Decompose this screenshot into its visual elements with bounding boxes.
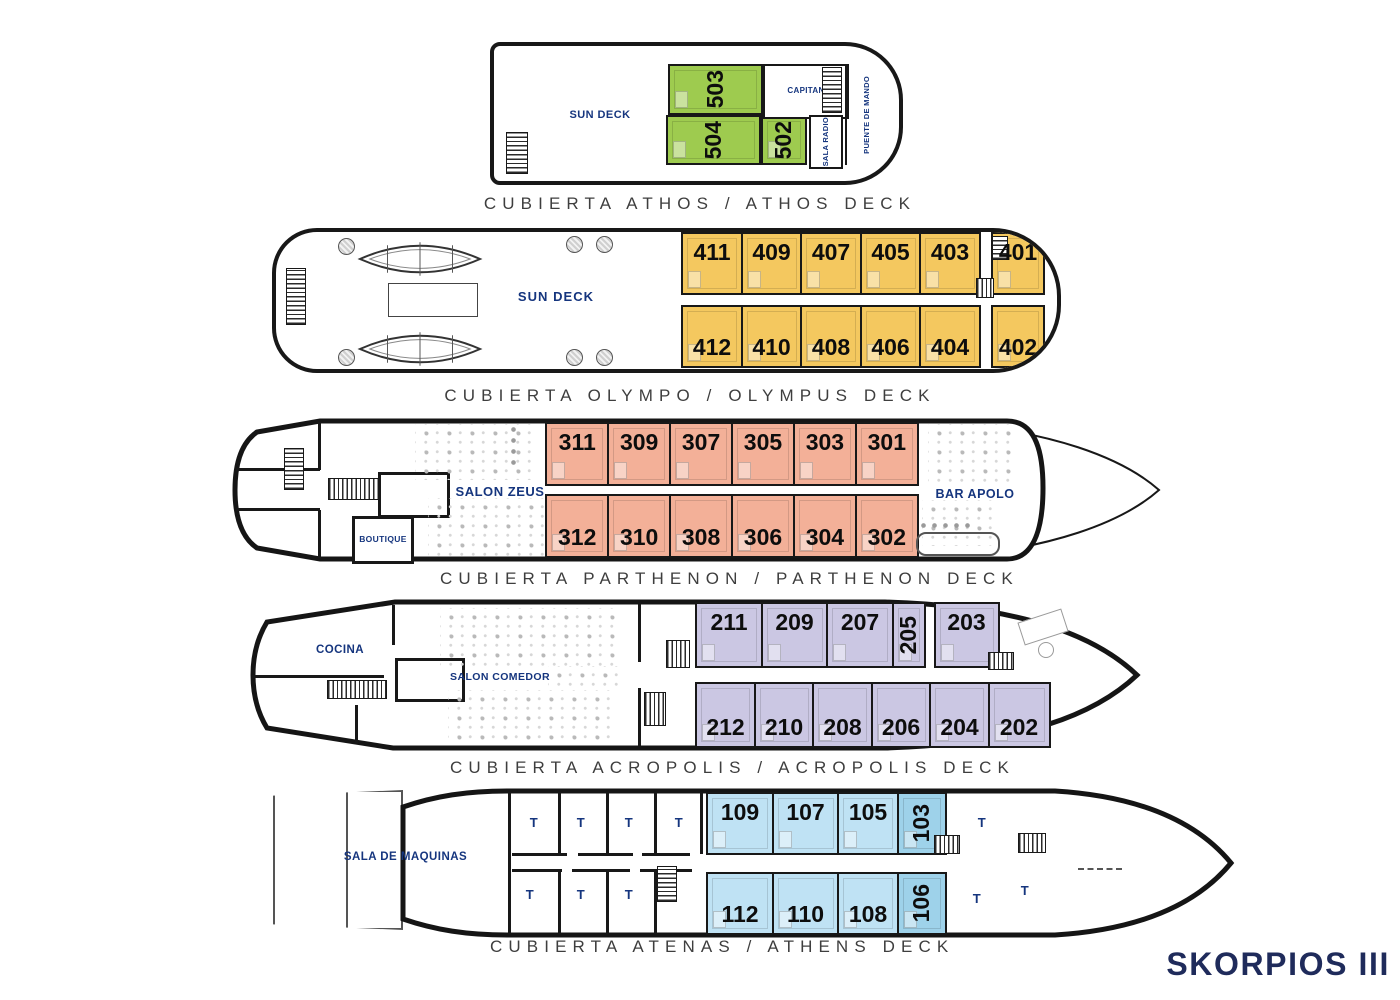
deck-table-icon [596,349,613,366]
cabin-number: 210 [765,716,803,739]
crew-cabin-label: T [571,888,591,902]
atenas-cabin-row-bottom: 112110108106 [706,872,954,935]
acropolis-cabin-row-top: 211209207205203 [695,602,1007,668]
atenas-deck-title: CUBIERTA ATENAS / ATHENS DECK [490,937,910,957]
stairs-icon [284,448,304,490]
tables-area [448,690,616,742]
crew-cabin-label: T [571,816,591,830]
interior-wall [508,792,511,934]
cabin-number: 409 [752,241,790,264]
salon-comedor-label: SALON COMEDOR [450,672,550,684]
cabin-number: 112 [721,903,758,926]
cabin-208: 208 [812,682,873,748]
cabin-312: 312 [545,494,609,558]
stairs-icon [934,835,960,854]
cabin-number: 405 [871,241,909,264]
cabin-412: 412 [681,305,743,368]
cabin-number: 302 [868,526,906,549]
cabin-106: 106 [897,872,947,935]
porthole-dots [918,520,974,530]
cabin-number: 502 [772,121,795,159]
olympo-hull: SUN DECK 411409407405403401 412410408406… [272,228,1061,373]
cabin-number: 206 [882,716,920,739]
stairs-icon [666,640,690,668]
cabin-307: 307 [669,422,733,486]
ship-name: SKORPIOS III [1050,946,1390,983]
deck-structure [388,283,478,317]
bar-apolo-label: BAR APOLO [925,488,1025,502]
cabin-411: 411 [681,232,743,295]
cabin-404: 404 [919,305,981,368]
cabin-210: 210 [754,682,815,748]
cabin-number: 209 [775,611,813,634]
sala-de-maquinas-label: SALA DE MAQUINAS [318,851,493,864]
cabin-number: 105 [849,801,887,824]
stairs-icon [286,268,306,325]
acropolis-cabin-row-bottom: 212210208206204202 [695,682,1063,748]
cabin-number: 401 [999,241,1037,264]
cabin-205: 205 [892,602,926,668]
sala-radio-label: SALA RADIO [822,117,830,166]
parthenon-deck-title: CUBIERTA PARTHENON / PARTHENON DECK [440,569,960,589]
cabin-402: 402 [991,305,1045,368]
cabin-503: 503 [668,64,763,115]
cabin-401: 401 [991,232,1045,295]
cabin-305: 305 [731,422,795,486]
crew-cabin-label: T [619,888,639,902]
cabin-number: 303 [806,431,844,454]
cabin-number: 108 [849,903,887,926]
cabin-number: 208 [823,716,861,739]
cabin-310: 310 [607,494,671,558]
cabin-number: 106 [910,884,933,922]
cabin-number: 412 [693,336,731,359]
deck-table-icon [338,238,355,255]
cabin-403: 403 [919,232,981,295]
cabin-407: 407 [800,232,862,295]
cabin-206: 206 [871,682,932,748]
cabin-311: 311 [545,422,609,486]
cabin-number: 207 [841,611,879,634]
bar-counter [916,532,1000,556]
parthenon-cabin-row-top: 311309307305303301 [545,422,919,486]
stairs-icon [657,866,677,902]
athos-deck-title: CUBIERTA ATHOS / ATHOS DECK [450,194,950,214]
cabin-303: 303 [793,422,857,486]
tables-area [428,498,548,556]
cabin-number: 312 [558,526,596,549]
tables-area [548,666,618,686]
olympo-cabin-row-bottom: 412410408406404402 [681,305,1056,368]
cabin-306: 306 [731,494,795,558]
cabin-406: 406 [860,305,922,368]
cabin-number: 110 [787,903,824,926]
olympo-sun-deck-label: SUN DECK [476,290,636,304]
cabin-number: 310 [620,526,658,549]
cabin-number: 504 [702,121,725,159]
interior-wall [318,422,321,470]
cabin-number: 211 [710,611,747,634]
cabin-number: 103 [910,804,933,842]
interior-wall [236,508,320,511]
cabin-number: 305 [744,431,782,454]
stairs-icon [644,692,666,726]
cabin-504: 504 [666,115,761,165]
corridor-wall [512,853,567,856]
dashed-wall [1078,868,1122,870]
parthenon-cabin-row-bottom: 312310308306304302 [545,494,919,558]
interior-wall [558,872,561,934]
crew-cabin-label: T [520,888,540,902]
cabin-209: 209 [761,602,829,668]
cabin-number: 503 [704,70,727,108]
cabin-number: 404 [931,336,969,359]
cabin-112: 112 [706,872,774,935]
cabin-number: 407 [812,241,850,264]
deck-table-icon [566,349,583,366]
interior-wall [355,705,358,743]
puente-de-mando-label: PUENTE DE MANDO [863,76,871,154]
olympo-deck-title: CUBIERTA OLYMPO / OLYMPUS DECK [430,386,950,406]
cabin-number: 205 [897,616,920,654]
stairs-icon [976,278,994,298]
cabin-number: 301 [868,431,906,454]
cabin-211: 211 [695,602,763,668]
cabin-309: 309 [607,422,671,486]
cabin-number: 308 [682,526,720,549]
cabin-number: 406 [871,336,909,359]
deck-plan-canvas: SUN DECK 503 504 502 CAPITAN SALA RADIO … [0,0,1400,1000]
cabin-number: 304 [806,526,844,549]
deck-table-icon [566,236,583,253]
stairs-icon [506,132,528,174]
acropolis-deck-title: CUBIERTA ACROPOLIS / ACROPOLIS DECK [450,758,950,778]
porthole-dots [508,424,520,470]
cabin-number: 212 [706,716,744,739]
corridor-wall [578,853,633,856]
cabin-number: 408 [812,336,850,359]
deck-table-icon [596,236,613,253]
interior-wall [252,675,384,678]
deck-table-icon [338,349,355,366]
cabin-number: 403 [931,241,969,264]
stairs-icon [988,652,1014,670]
interior-wall [606,872,609,934]
crew-cabin-label: T [1015,884,1035,898]
sala-radio-room: SALA RADIO [809,115,843,169]
cabin-number: 411 [693,241,730,264]
stairs-icon [822,67,842,113]
cabin-number: 410 [752,336,790,359]
cabin-110: 110 [772,872,840,935]
stairs-icon [327,680,387,699]
cabin-301: 301 [855,422,919,486]
tables-area [440,608,615,666]
crew-cabin-label: T [669,816,689,830]
interior-wall [318,510,321,558]
interior-wall [606,792,609,854]
cabin-105: 105 [837,792,899,855]
cabin-number: 107 [786,801,824,824]
suite-table [1038,642,1054,658]
interior-wall [558,792,561,854]
interior-wall [700,792,703,854]
cabin-number: 402 [999,336,1037,359]
lifeboat-icon [356,328,484,370]
crew-cabin-label: T [972,816,992,830]
cabin-410: 410 [741,305,803,368]
atenas-cabin-row-top: 109107105103 [706,792,954,855]
corridor-wall [512,869,562,872]
cabin-number: 202 [1000,716,1038,739]
crew-cabin-label: T [619,816,639,830]
cabin-204: 204 [929,682,990,748]
puente-de-mando-room: PUENTE DE MANDO [845,64,887,165]
stairs-icon [1018,833,1046,853]
athos-sun-deck-label: SUN DECK [520,109,680,121]
interior-wall [638,604,641,662]
cabin-number: 204 [940,716,978,739]
cabin-308: 308 [669,494,733,558]
cabin-207: 207 [826,602,894,668]
cabin-108: 108 [837,872,899,935]
cabin-405: 405 [860,232,922,295]
crew-cabin-label: T [524,816,544,830]
cabin-304: 304 [793,494,857,558]
cabin-409: 409 [741,232,803,295]
cabin-number: 109 [721,801,759,824]
cabin-number: 306 [744,526,782,549]
cabin-number: 203 [947,611,985,634]
cabin-212: 212 [695,682,756,748]
interior-wall [392,605,395,645]
capitan-label: CAPITAN [787,87,824,96]
cabin-502: 502 [761,115,807,165]
boutique-room: BOUTIQUE [352,516,414,564]
tables-area [928,424,1012,482]
interior-wall [654,792,657,854]
interior-wall [638,688,641,746]
cabin-408: 408 [800,305,862,368]
lifeboat-icon [356,238,484,280]
cabin-number: 309 [620,431,658,454]
cabin-202: 202 [988,682,1051,748]
crew-cabin-label: T [967,892,987,906]
cabin-number: 311 [559,431,596,454]
interior-wall [236,468,320,471]
cabin-number: 307 [682,431,720,454]
olympo-cabin-row-top: 411409407405403401 [681,232,1056,295]
cabin-109: 109 [706,792,774,855]
boutique-label: BOUTIQUE [359,535,407,544]
cocina-label: COCINA [290,644,390,657]
corridor-wall [642,853,690,856]
cabin-107: 107 [772,792,840,855]
corridor-wall [572,869,630,872]
cabin-302: 302 [855,494,919,558]
